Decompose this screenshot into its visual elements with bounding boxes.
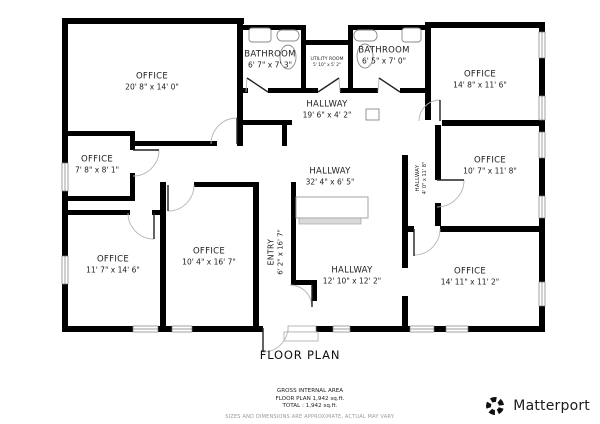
room-label-hallway-bottom: HALLWAY 12' 10" x 12' 2" (323, 266, 381, 287)
room-dimensions: 4' 0" x 11' 8" (422, 162, 429, 195)
room-label-bathroom-right: BATHROOM 6' 5" x 7' 0" (358, 46, 410, 67)
total-area: TOTAL : 1,942 sq.ft. (160, 403, 460, 411)
room-name: HALLWAY (415, 162, 422, 195)
room-name: ENTRY (267, 229, 277, 275)
room-label-office-mid-right: OFFICE 10' 7" x 11' 8" (463, 156, 517, 177)
room-label-office-top-right: OFFICE 14' 8" x 11' 6" (453, 70, 507, 91)
room-name: OFFICE (441, 267, 499, 278)
room-dimensions: 14' 11" x 11' 2" (441, 278, 499, 288)
room-name: OFFICE (125, 72, 179, 83)
room-dimensions: 5' 10" x 5' 2" (311, 63, 344, 69)
room-dimensions: 12' 10" x 12' 2" (323, 277, 381, 287)
matterport-wordmark: Matterport (513, 398, 590, 414)
room-dimensions: 10' 7" x 11' 8" (463, 167, 517, 177)
room-name: OFFICE (86, 255, 140, 266)
room-label-office-bottom-left: OFFICE 11' 7" x 14' 6" (86, 255, 140, 276)
room-name: OFFICE (75, 155, 119, 166)
floor-plan-page: OFFICE 20' 8" x 14' 0" BATHROOM 6' 7" x … (0, 0, 600, 424)
room-name: OFFICE (453, 70, 507, 81)
room-dimensions: 6' 7" x 7' 3" (244, 61, 296, 71)
room-label-entry: ENTRY 6' 2" x 16' 7" (267, 229, 286, 275)
room-label-office-bottom-right: OFFICE 14' 11" x 11' 2" (441, 267, 499, 288)
room-dimensions: 7' 8" x 8' 1" (75, 166, 119, 176)
room-dimensions: 20' 8" x 14' 0" (125, 83, 179, 93)
room-name: OFFICE (463, 156, 517, 167)
floor-plan-area: FLOOR PLAN 1,942 sq.ft. (160, 396, 460, 404)
room-label-hallway-top: HALLWAY 19' 6" x 4' 2" (303, 100, 352, 121)
room-dimensions: 32' 4" x 6' 5" (306, 178, 355, 188)
room-name: BATHROOM (244, 50, 296, 61)
room-name: BATHROOM (358, 46, 410, 57)
area-summary: GROSS INTERNAL AREA FLOOR PLAN 1,942 sq.… (160, 388, 460, 420)
matterport-logo: Matterport (483, 394, 590, 418)
room-dimensions: 10' 4" x 16' 7" (182, 258, 236, 268)
room-label-office-bottom-mid: OFFICE 10' 4" x 16' 7" (182, 247, 236, 268)
room-label-hallway-mid: HALLWAY 32' 4" x 6' 5" (306, 167, 355, 188)
room-name: HALLWAY (306, 167, 355, 178)
room-dimensions: 11' 7" x 14' 6" (86, 266, 140, 276)
room-label-hallway-vertical: HALLWAY 4' 0" x 11' 8" (415, 162, 429, 195)
room-dimensions: 19' 6" x 4' 2" (303, 111, 352, 121)
gross-area-heading: GROSS INTERNAL AREA (160, 388, 460, 396)
room-label-office-mid-left: OFFICE 7' 8" x 8' 1" (75, 155, 119, 176)
room-label-bathroom-left: BATHROOM 6' 7" x 7' 3" (244, 50, 296, 71)
disclaimer-text: SIZES AND DIMENSIONS ARE APPROXIMATE, AC… (160, 414, 460, 420)
room-name: OFFICE (182, 247, 236, 258)
room-dimensions: 6' 2" x 16' 7" (276, 229, 285, 275)
matterport-pinwheel-icon (483, 394, 507, 418)
room-name: HALLWAY (323, 266, 381, 277)
page-title: FLOOR PLAN (260, 348, 340, 362)
room-label-utility-room: UTILITY ROOM 5' 10" x 5' 2" (311, 57, 344, 69)
room-dimensions: 14' 8" x 11' 6" (453, 81, 507, 91)
room-name: HALLWAY (303, 100, 352, 111)
room-label-office-top-left: OFFICE 20' 8" x 14' 0" (125, 72, 179, 93)
room-dimensions: 6' 5" x 7' 0" (358, 57, 410, 67)
